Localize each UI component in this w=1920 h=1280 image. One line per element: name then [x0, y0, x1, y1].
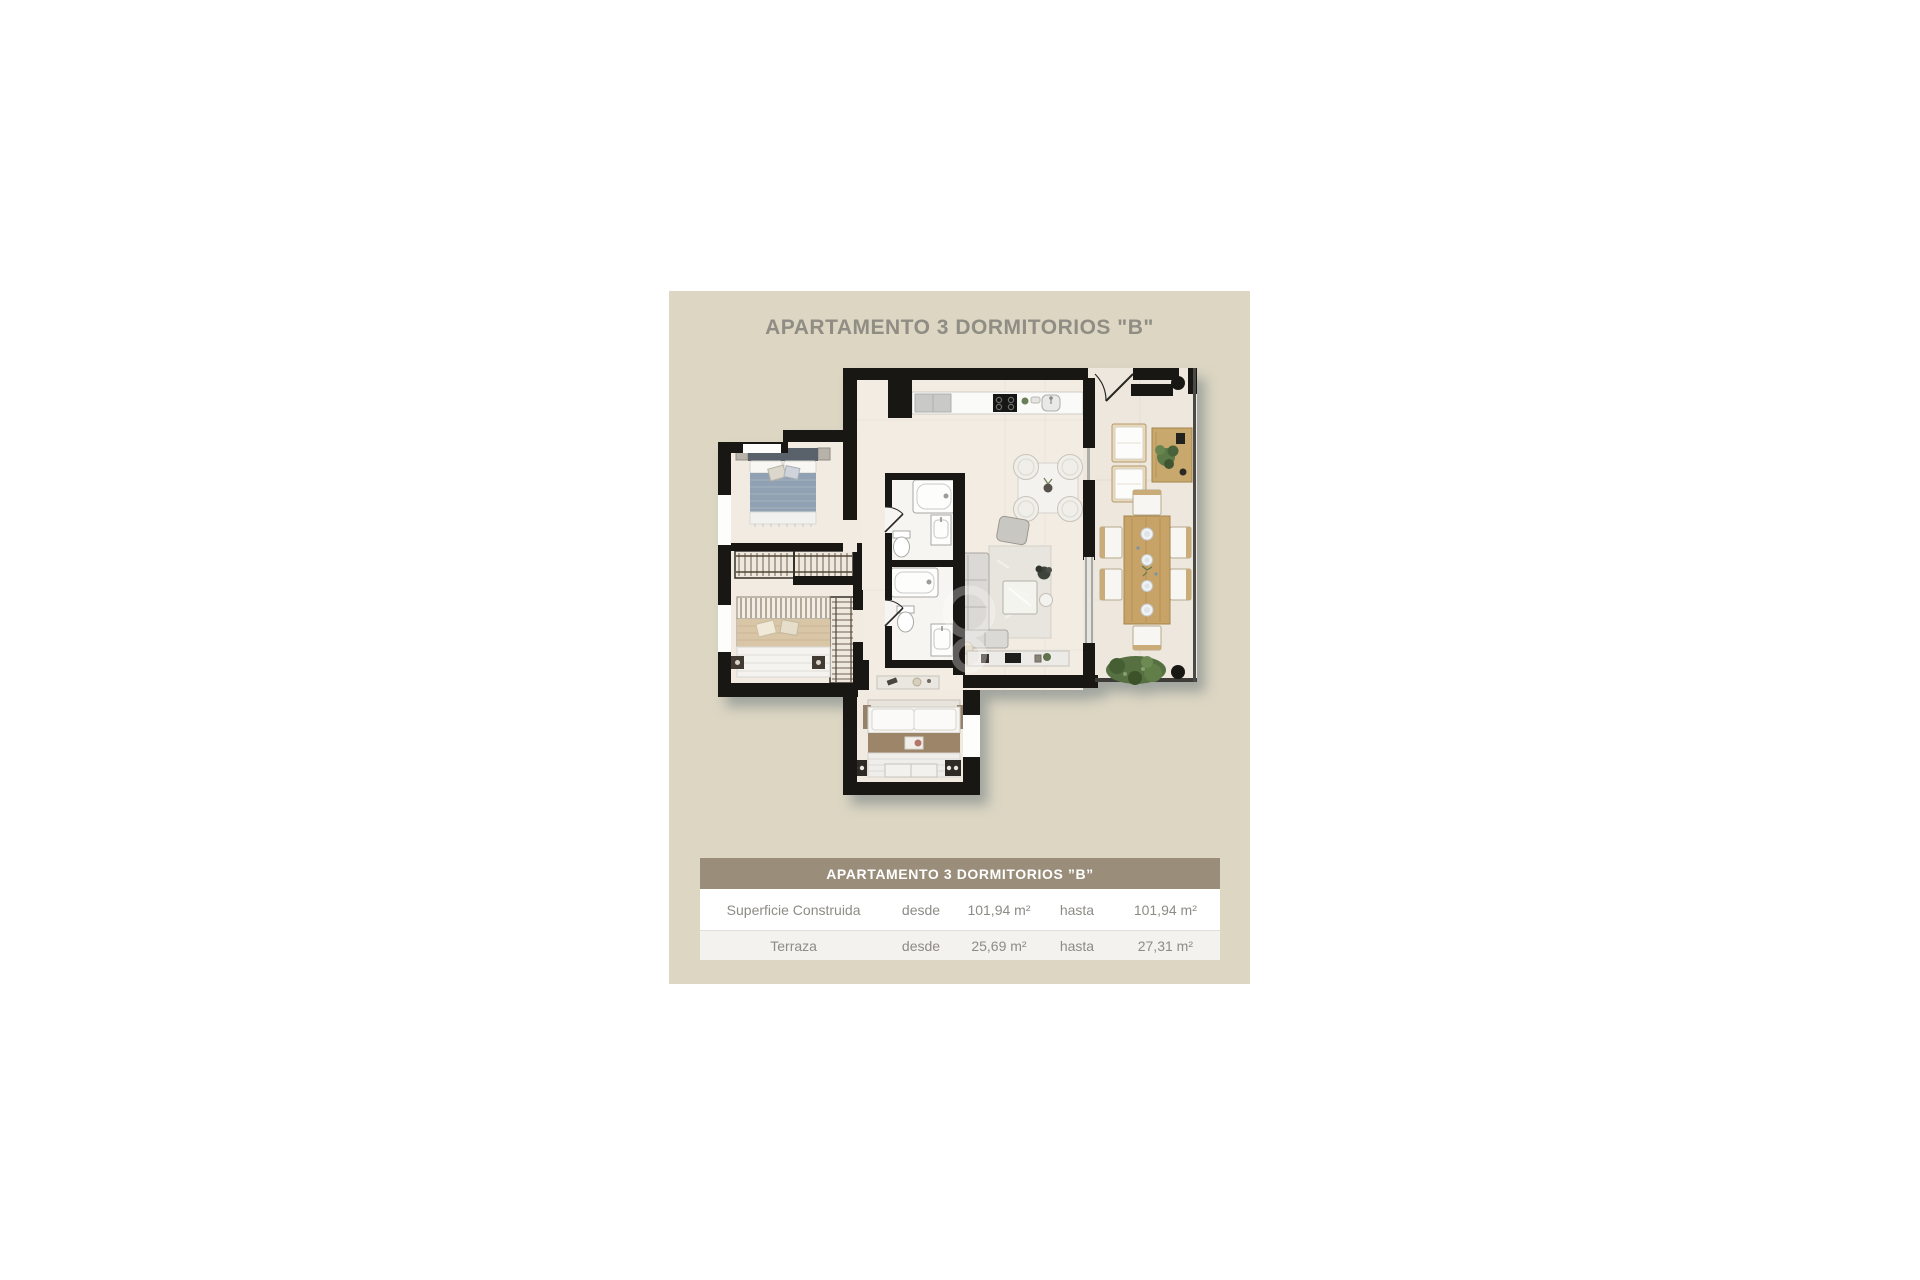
wardrobe-horizontal [735, 551, 853, 578]
hasta-label: hasta [1043, 902, 1111, 918]
bedroom-1-bed [736, 448, 830, 527]
table-row: Superficie Construida desde 101,94 m² ha… [700, 889, 1220, 930]
desde-value: 101,94 m² [955, 902, 1043, 918]
table-row: Terraza desde 25,69 m² hasta 27,31 m² [700, 930, 1220, 960]
floorplan-image [705, 360, 1205, 815]
page-title: APARTAMENTO 3 DORMITORIOS "B" [669, 316, 1250, 340]
floorplan-panel: APARTAMENTO 3 DORMITORIOS "B" [669, 291, 1250, 984]
bedroom-3-bed [851, 700, 965, 777]
page: APARTAMENTO 3 DORMITORIOS "B" [0, 0, 1920, 1280]
desde-label: desde [887, 938, 955, 954]
desde-value: 25,69 m² [955, 938, 1043, 954]
kitchen-counter [912, 392, 1083, 414]
desde-label: desde [887, 902, 955, 918]
bedroom-2-bed [731, 597, 830, 677]
terrace-sideboard [1152, 428, 1192, 482]
spec-table-header: APARTAMENTO 3 DORMITORIOS ”B” [700, 858, 1220, 889]
row-label: Superficie Construida [700, 902, 887, 918]
hasta-label: hasta [1043, 938, 1111, 954]
hasta-value: 27,31 m² [1111, 938, 1220, 954]
hall-console [877, 676, 939, 689]
wardrobe-vertical [830, 597, 857, 683]
row-label: Terraza [700, 938, 887, 954]
hasta-value: 101,94 m² [1111, 902, 1220, 918]
indoor-dining-table [1014, 455, 1083, 522]
spec-table: APARTAMENTO 3 DORMITORIOS ”B” Superficie… [700, 858, 1220, 960]
